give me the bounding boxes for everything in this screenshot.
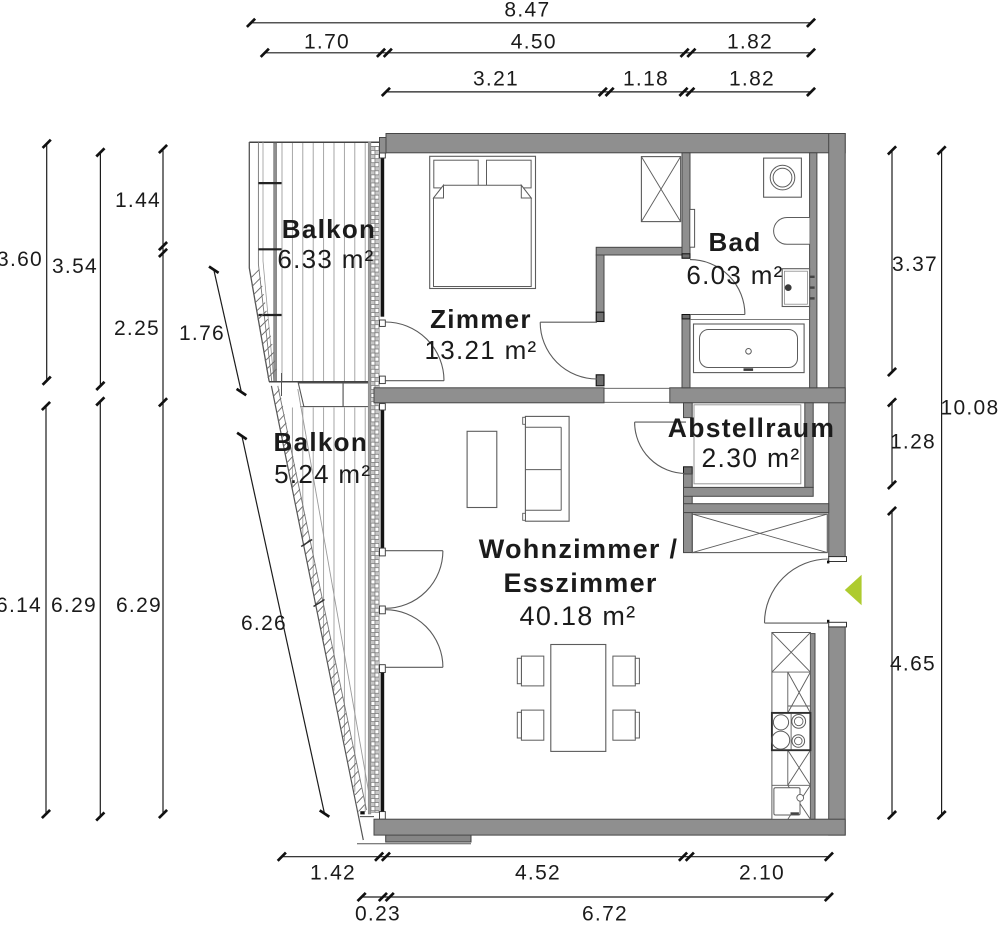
svg-text:3.60: 3.60 (0, 248, 43, 271)
svg-text:Zimmer: Zimmer (430, 304, 532, 334)
svg-text:6.14: 6.14 (0, 594, 42, 617)
svg-text:6.03 m²: 6.03 m² (686, 260, 783, 290)
svg-text:4.52: 4.52 (515, 861, 561, 884)
svg-text:6.33 m²: 6.33 m² (277, 244, 374, 274)
svg-text:1.82: 1.82 (727, 30, 773, 53)
svg-text:1.70: 1.70 (304, 30, 350, 53)
svg-text:1.28: 1.28 (890, 431, 936, 454)
svg-text:6.29: 6.29 (51, 594, 97, 617)
svg-text:40.18 m²: 40.18 m² (520, 601, 637, 631)
svg-text:0.23: 0.23 (355, 903, 401, 926)
svg-text:1.82: 1.82 (729, 68, 775, 91)
svg-text:1.42: 1.42 (310, 861, 356, 884)
svg-text:10.08: 10.08 (940, 397, 999, 420)
svg-text:Esszimmer: Esszimmer (503, 568, 657, 598)
svg-text:6.29: 6.29 (116, 594, 162, 617)
svg-text:4.50: 4.50 (511, 30, 557, 53)
svg-text:4.65: 4.65 (890, 653, 936, 676)
svg-text:6.26: 6.26 (241, 612, 287, 635)
svg-text:6.72: 6.72 (582, 903, 628, 926)
svg-text:13.21 m²: 13.21 m² (424, 335, 537, 365)
svg-text:Abstellraum: Abstellraum (668, 413, 835, 443)
svg-text:3.37: 3.37 (892, 253, 938, 276)
svg-text:5.24 m²: 5.24 m² (274, 459, 371, 489)
svg-text:1.18: 1.18 (623, 68, 669, 91)
svg-text:2.10: 2.10 (739, 861, 785, 884)
svg-text:2.30 m²: 2.30 m² (702, 443, 801, 473)
svg-text:1.76: 1.76 (179, 322, 225, 345)
svg-text:Wohnzimmer /: Wohnzimmer / (479, 534, 679, 564)
svg-text:3.21: 3.21 (473, 68, 519, 91)
svg-text:Balkon: Balkon (274, 427, 368, 457)
svg-text:2.25: 2.25 (114, 317, 160, 340)
svg-text:1.44: 1.44 (115, 189, 161, 212)
svg-text:Bad: Bad (708, 227, 761, 257)
svg-text:8.47: 8.47 (504, 0, 550, 21)
svg-text:3.54: 3.54 (52, 255, 98, 278)
svg-text:Balkon: Balkon (282, 214, 376, 244)
